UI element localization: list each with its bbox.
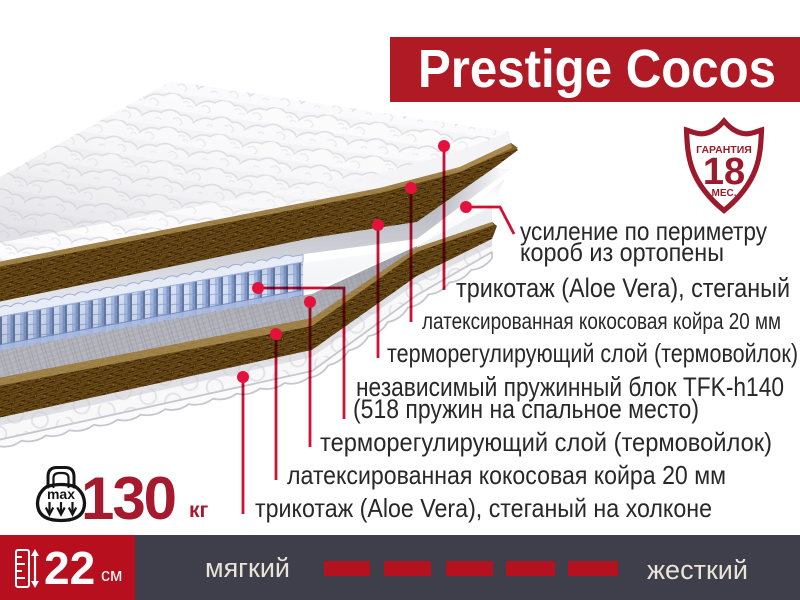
- svg-text:max: max: [47, 486, 75, 502]
- svg-text:мягкий: мягкий: [205, 553, 290, 583]
- svg-text:18: 18: [703, 151, 745, 193]
- svg-text:латексированная кокосовая койр: латексированная кокосовая койра 20 мм: [287, 460, 726, 490]
- svg-text:трикотаж (Aloe Vera), стеганый: трикотаж (Aloe Vera), стеганый: [456, 273, 790, 303]
- svg-text:МЕС.: МЕС.: [712, 188, 737, 199]
- svg-text:трикотаж (Aloe Vera), стеганый: трикотаж (Aloe Vera), стеганый на холкон…: [255, 493, 712, 523]
- svg-text:Prestige Cocos: Prestige Cocos: [418, 39, 776, 99]
- svg-text:22: 22: [44, 542, 95, 594]
- svg-text:см: см: [101, 565, 122, 585]
- svg-text:130: 130: [81, 465, 177, 532]
- svg-text:жесткий: жесткий: [647, 555, 748, 585]
- svg-text:терморегулирующий слой (термов: терморегулирующий слой (термовойлок): [320, 427, 772, 457]
- svg-text:(518 пружин на спальное место): (518 пружин на спальное место): [353, 394, 699, 424]
- svg-text:короб из ортопены: короб из ортопены: [520, 237, 724, 267]
- svg-text:кг: кг: [189, 499, 209, 522]
- svg-text:терморегулирующий слой (термов: терморегулирующий слой (термовойлок): [387, 338, 798, 368]
- svg-text:латексированная кокосовая койр: латексированная кокосовая койра 20 мм: [422, 308, 781, 334]
